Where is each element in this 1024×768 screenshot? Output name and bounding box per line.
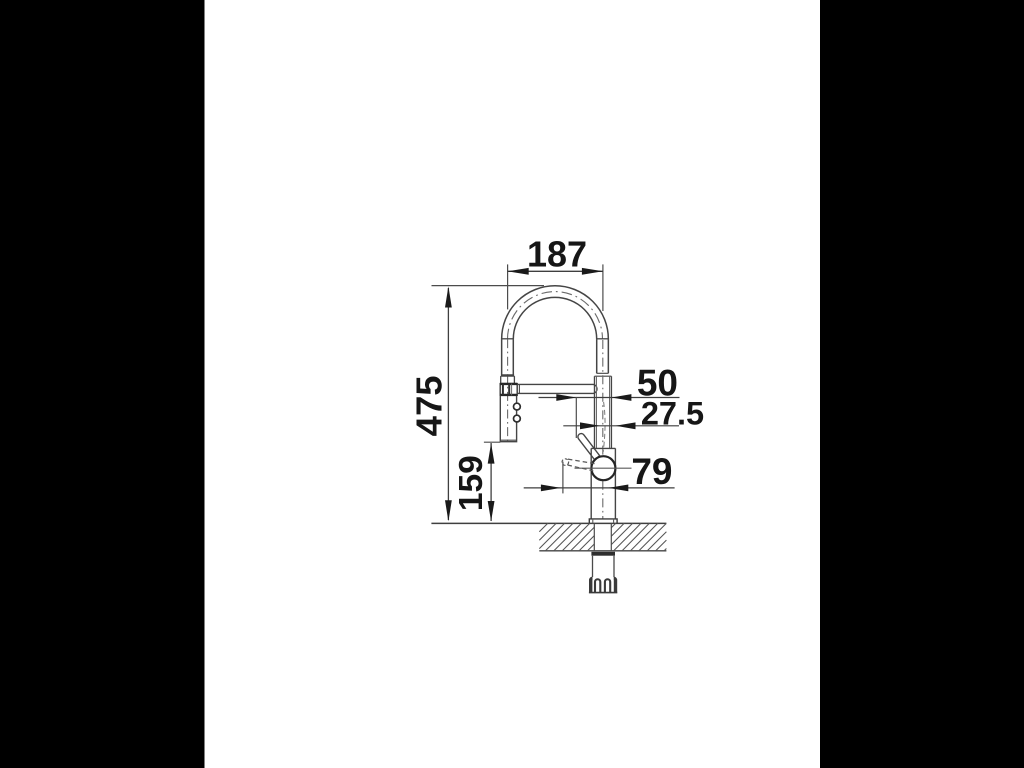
svg-text:159: 159	[453, 455, 490, 511]
svg-text:187: 187	[527, 234, 587, 275]
svg-text:27.5: 27.5	[641, 396, 704, 432]
svg-text:475: 475	[408, 375, 449, 436]
svg-text:79: 79	[631, 451, 672, 492]
